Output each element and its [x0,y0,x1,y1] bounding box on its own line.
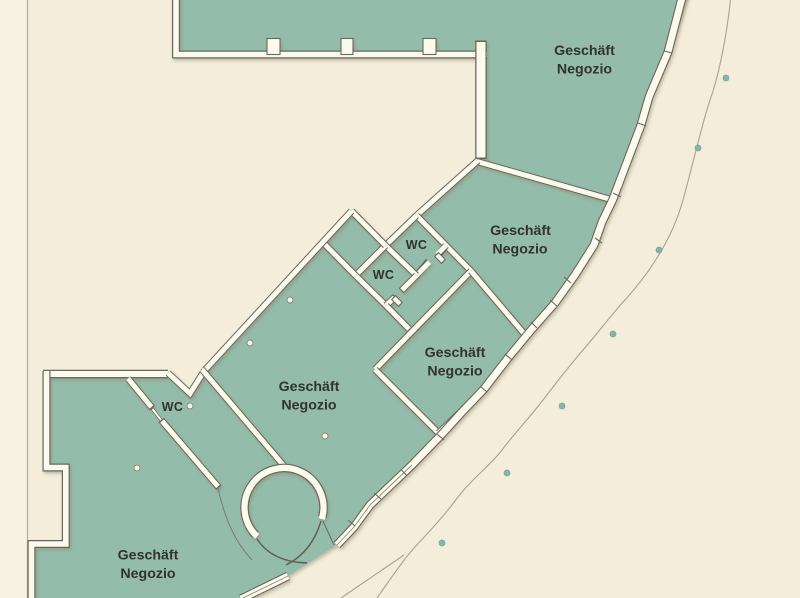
svg-text:Negozio: Negozio [492,242,548,258]
svg-text:Negozio: Negozio [427,364,483,380]
svg-text:WC: WC [162,400,183,414]
svg-text:Negozio: Negozio [557,62,613,78]
svg-text:Negozio: Negozio [120,566,176,582]
svg-text:Geschäft: Geschäft [118,548,179,564]
svg-text:Geschäft: Geschäft [490,223,551,239]
svg-text:Negozio: Negozio [281,398,337,414]
svg-text:WC: WC [373,268,394,282]
svg-text:Geschäft: Geschäft [554,43,615,59]
svg-text:Geschäft: Geschäft [425,345,486,361]
svg-text:WC: WC [406,238,427,252]
svg-text:Geschäft: Geschäft [279,379,340,395]
